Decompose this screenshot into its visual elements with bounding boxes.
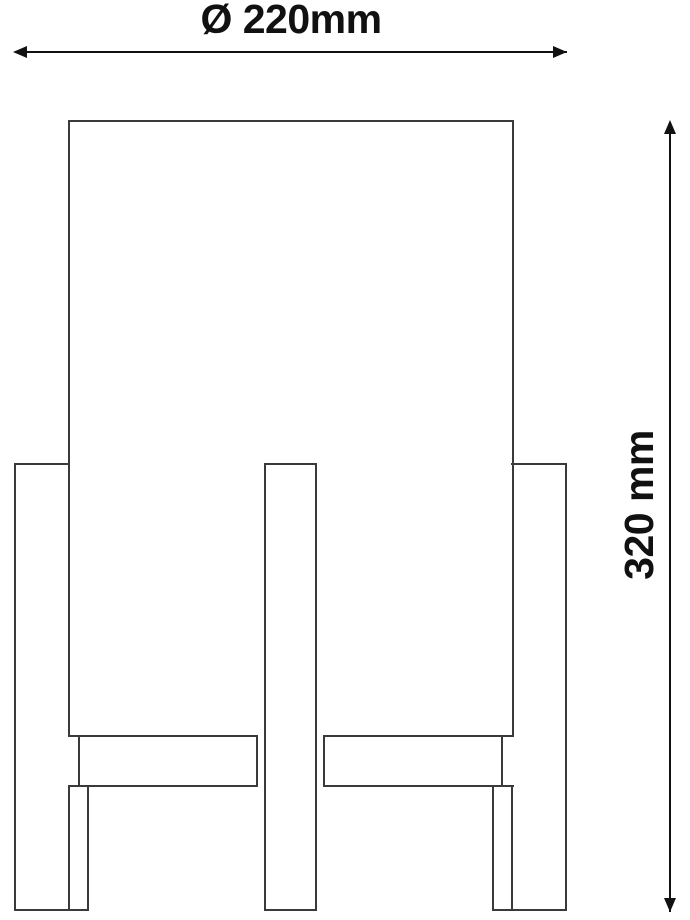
left-rail-outline <box>68 735 258 787</box>
width-arrow-right-icon <box>553 46 567 58</box>
right-rail-outline <box>323 735 514 787</box>
height-arrow-down-icon <box>664 898 676 912</box>
height-dimension-label: 320 mm <box>615 355 663 655</box>
right-rear-leg-outline <box>492 787 513 911</box>
dimension-drawing: Ø 220mm 320 mm <box>0 0 690 920</box>
right-leg-outline <box>511 463 567 911</box>
left-leg-outline <box>14 463 70 911</box>
left-rail-joint-line <box>78 735 80 787</box>
height-arrow-up-icon <box>664 120 676 134</box>
width-arrow-left-icon <box>13 46 27 58</box>
height-dimension-line <box>669 122 671 912</box>
left-rear-leg-outline <box>68 787 89 911</box>
width-dimension-label: Ø 220mm <box>91 0 491 42</box>
lampshade-outline <box>68 120 514 735</box>
width-dimension-line <box>15 51 567 53</box>
right-rail-joint-line <box>501 735 503 787</box>
